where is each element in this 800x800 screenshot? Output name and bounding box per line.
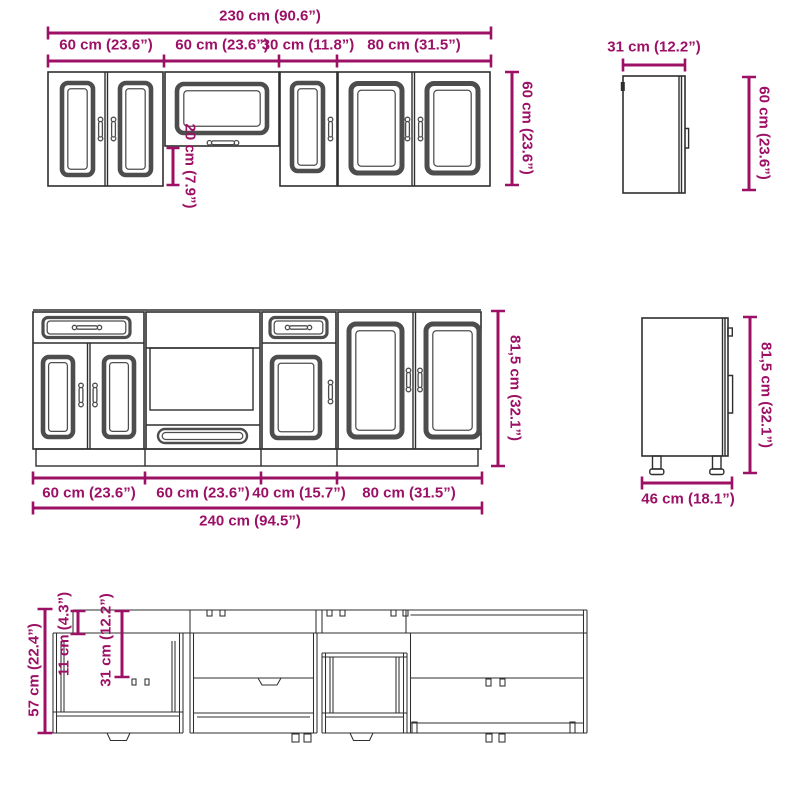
- flip-door-handle: [207, 141, 239, 146]
- dim-wall-side-height: 60 cm (23.6”): [757, 86, 772, 179]
- dim-wall-unit1-width: 60 cm (23.6”): [59, 38, 152, 53]
- dim-wall-flip-gap: 20 cm (7.9”): [183, 123, 198, 208]
- drawer-handle: [285, 325, 311, 329]
- adjustable-feet: [650, 456, 724, 475]
- base-cabinets-front-view: [33, 310, 481, 466]
- dim-wall-unit3-width: 30 cm (11.8”): [262, 38, 355, 53]
- dim-base-unit2-width: 60 cm (23.6”): [156, 486, 249, 501]
- dim-wall-side-width: 31 cm (12.2”): [607, 40, 700, 55]
- dim-wall-height: 60 cm (23.6”): [520, 81, 535, 174]
- door-handle: [328, 380, 333, 404]
- drawer-box-2: [190, 633, 317, 742]
- dim-drawer-mid-section: 31 cm (12.2”): [99, 593, 114, 686]
- dim-base-total-width: 240 cm (94.5”): [199, 514, 301, 529]
- dim-drawer-total-height: 57 cm (22.4”): [27, 623, 42, 716]
- oven-cavity: [150, 348, 253, 410]
- dim-base-unit4-width: 80 cm (31.5”): [362, 486, 455, 501]
- dim-base-side-width: 46 cm (18.1”): [641, 492, 734, 507]
- hinge-mark: [621, 82, 625, 91]
- dim-base-unit3-width: 40 cm (15.7”): [252, 486, 345, 501]
- drawer-handle: [72, 325, 101, 329]
- drawers-detail-view: [53, 610, 587, 742]
- dim-drawer-top-section: 11 cm (4.3”): [57, 592, 72, 676]
- dim-wall-total-width: 230 cm (90.6”): [219, 9, 321, 24]
- drawer-box-4: [407, 610, 587, 742]
- door-handle: [406, 368, 422, 392]
- drawer-box-1: [53, 633, 183, 741]
- door-handle: [328, 117, 333, 141]
- kitchen-cabinet-dimension-diagram: 230 cm (90.6”) 60 cm (23.6”) 60 cm (23.6…: [0, 0, 800, 800]
- dim-base-unit1-width: 60 cm (23.6”): [42, 486, 135, 501]
- plinth: [36, 449, 478, 466]
- dim-base-height: 81,5 cm (32.1”): [508, 335, 523, 441]
- dim-base-side-height: 81,5 cm (32.1”): [759, 342, 774, 448]
- dim-wall-unit4-width: 80 cm (31.5”): [367, 38, 460, 53]
- wall-cabinet-side-view: [621, 76, 689, 193]
- dim-wall-unit2-width: 60 cm (23.6”): [175, 38, 268, 53]
- drawer-box-3: [322, 653, 407, 741]
- base-cabinet-side-view: [642, 318, 733, 475]
- wall-tab: [728, 328, 732, 336]
- wall-cabinets-front-view: [48, 72, 490, 186]
- diagram-line-art: [0, 0, 800, 800]
